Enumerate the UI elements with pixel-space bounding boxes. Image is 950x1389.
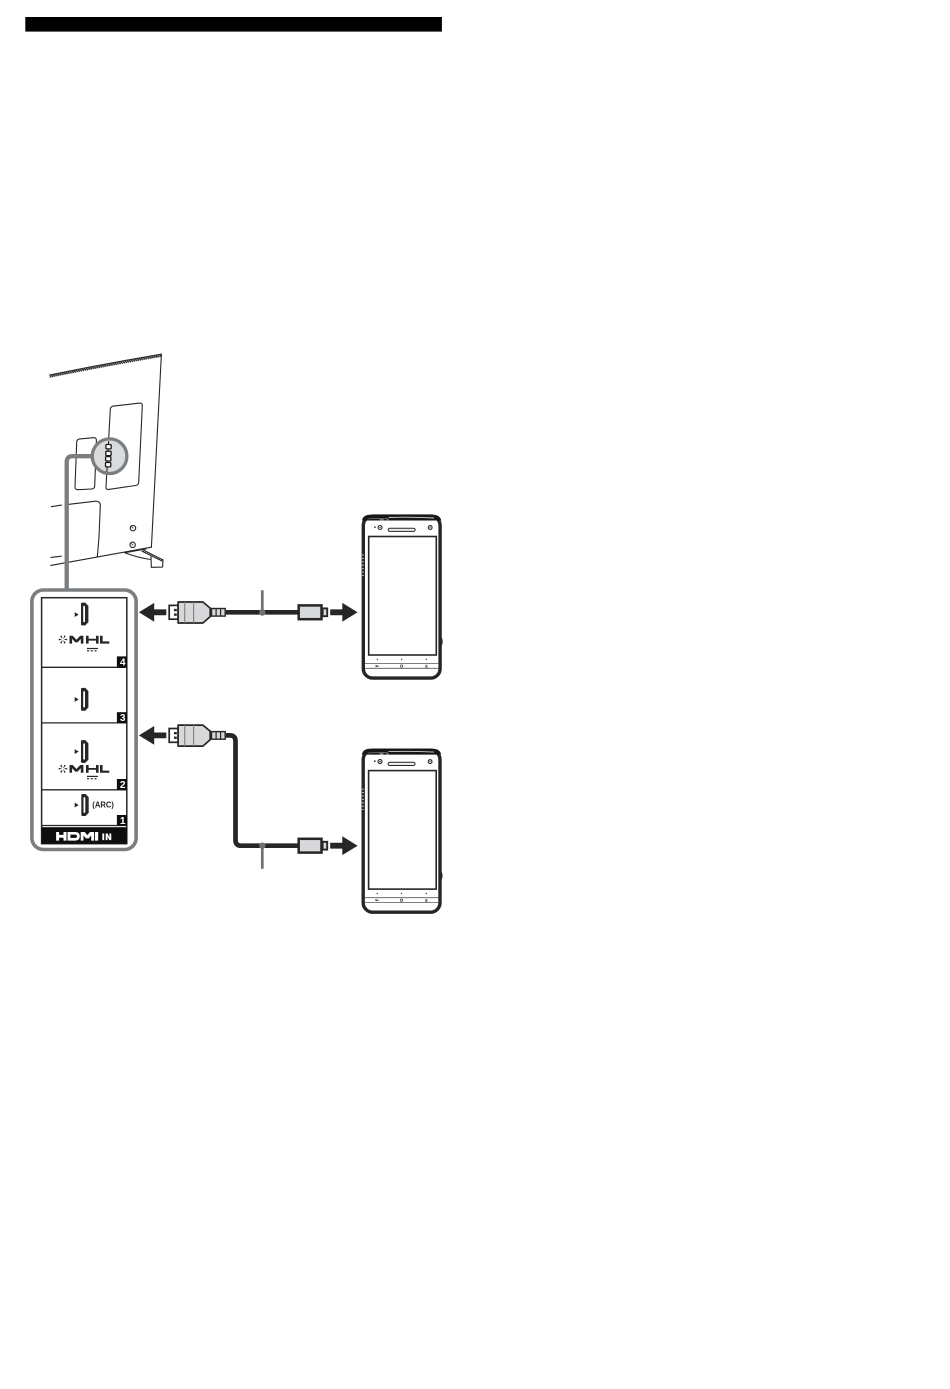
svg-text:2: 2 <box>120 780 126 791</box>
svg-text:3: 3 <box>120 713 126 724</box>
svg-text:(ARC): (ARC) <box>92 800 114 809</box>
svg-text:1: 1 <box>120 816 126 827</box>
svg-text:4: 4 <box>120 657 126 668</box>
